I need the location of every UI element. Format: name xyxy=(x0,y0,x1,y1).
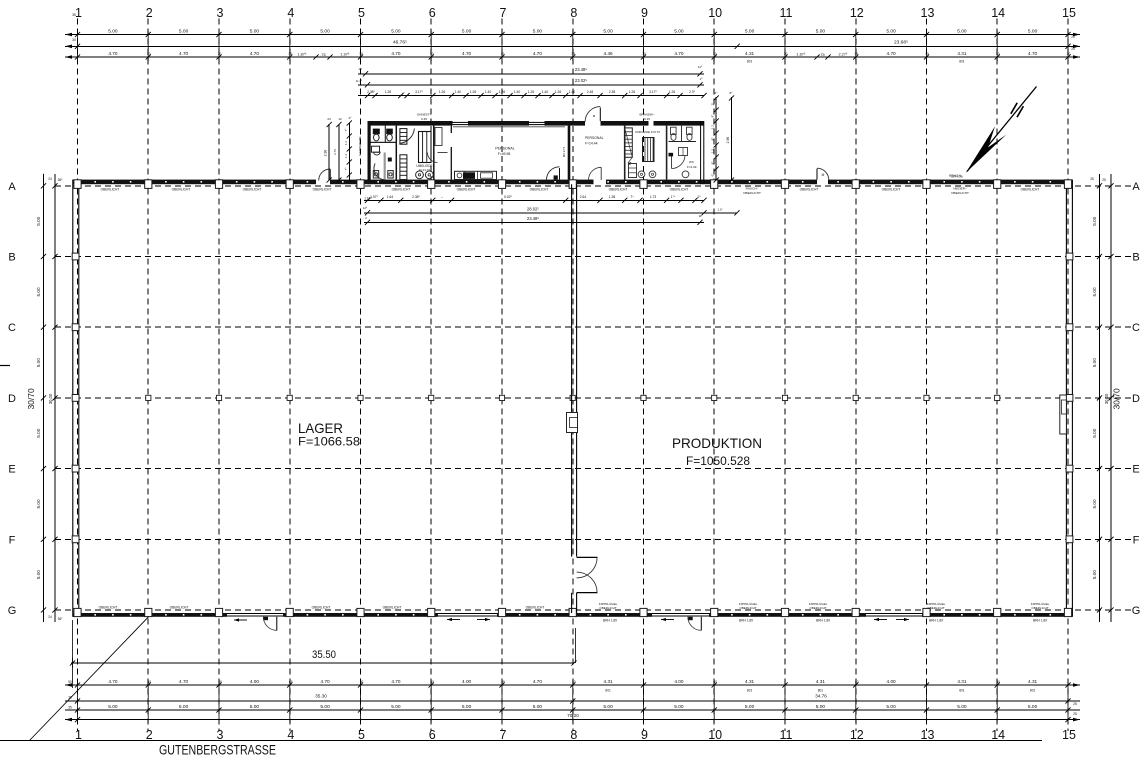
svg-text:1.3: 1.3 xyxy=(344,154,348,158)
svg-text:5.00: 5.00 xyxy=(957,28,967,34)
svg-text:35.30: 35.30 xyxy=(315,693,327,698)
svg-text:2.27⁵: 2.27⁵ xyxy=(839,52,848,56)
svg-text:30: 30 xyxy=(359,52,363,56)
svg-text:24: 24 xyxy=(48,177,52,181)
svg-text:4.00: 4.00 xyxy=(887,679,897,684)
svg-text:.75: .75 xyxy=(320,53,325,57)
svg-text:1.64: 1.64 xyxy=(387,195,394,199)
svg-text:4.70: 4.70 xyxy=(391,51,401,56)
svg-text:4.70: 4.70 xyxy=(179,51,189,56)
svg-text:5.00: 5.00 xyxy=(603,704,613,710)
svg-text:30: 30 xyxy=(642,52,646,56)
svg-text:4.31: 4.31 xyxy=(1028,679,1038,684)
svg-text:5.00: 5.00 xyxy=(36,570,41,580)
svg-text:1.26: 1.26 xyxy=(629,90,636,94)
svg-text:30: 30 xyxy=(996,52,1000,56)
svg-text:1.26: 1.26 xyxy=(439,90,446,94)
svg-text:4.70: 4.70 xyxy=(250,51,260,56)
svg-text:2.76: 2.76 xyxy=(333,149,337,155)
svg-text:1.40: 1.40 xyxy=(514,90,521,94)
svg-text:OBERLICHT: OBERLICHT xyxy=(243,188,262,192)
svg-text:30: 30 xyxy=(501,52,505,56)
svg-text:1.38: 1.38 xyxy=(609,195,616,199)
svg-text:4.70: 4.70 xyxy=(1028,51,1038,56)
svg-text:4.31: 4.31 xyxy=(957,51,967,56)
svg-text:OBERLICHT: OBERLICHT xyxy=(457,188,476,192)
svg-text:BRH 1.89: BRH 1.89 xyxy=(929,619,943,623)
svg-text:801: 801 xyxy=(959,60,965,64)
svg-text:BRH 1.89: BRH 1.89 xyxy=(739,619,753,623)
svg-text:36⁵: 36⁵ xyxy=(58,178,64,182)
svg-text:2.3⁵: 2.3⁵ xyxy=(689,90,696,94)
svg-text:10: 10 xyxy=(358,67,362,71)
svg-text:OBERLICHT: OBERLICHT xyxy=(800,188,819,192)
svg-text:11: 11 xyxy=(698,214,701,218)
svg-text:36⁵: 36⁵ xyxy=(58,617,64,621)
svg-text:5.00: 5.00 xyxy=(391,28,401,34)
svg-text:OBERLICHT: OBERLICHT xyxy=(312,606,331,610)
svg-text:.75: .75 xyxy=(819,53,824,57)
svg-text:D: D xyxy=(1132,393,1140,405)
svg-text:801: 801 xyxy=(818,689,824,693)
svg-text:1.40: 1.40 xyxy=(485,90,492,94)
svg-text:15: 15 xyxy=(1062,6,1076,20)
svg-text:PRODUKTION: PRODUKTION xyxy=(672,435,762,451)
svg-text:8⁵: 8⁵ xyxy=(711,138,715,141)
svg-text:5.00: 5.00 xyxy=(462,28,472,34)
svg-text:801: 801 xyxy=(747,689,753,693)
svg-text:7⁵: 7⁵ xyxy=(344,168,348,171)
svg-text:12⁵: 12⁵ xyxy=(363,206,367,210)
svg-text:1.2: 1.2 xyxy=(711,125,715,129)
svg-text:4.31: 4.31 xyxy=(957,679,967,684)
svg-text:OBERLICHT: OBERLICHT xyxy=(882,188,901,192)
svg-text:9: 9 xyxy=(641,6,648,20)
svg-text:5.00: 5.00 xyxy=(36,358,41,368)
svg-text:F=14.44: F=14.44 xyxy=(585,142,598,146)
svg-text:6: 6 xyxy=(429,6,436,20)
svg-text:G: G xyxy=(1132,605,1141,617)
svg-text:30: 30 xyxy=(571,52,575,56)
svg-text:5.00: 5.00 xyxy=(1092,358,1097,368)
svg-text:1.07⁵: 1.07⁵ xyxy=(370,195,378,199)
svg-text:2.96: 2.96 xyxy=(323,150,327,157)
svg-text:5.00: 5.00 xyxy=(179,704,189,710)
svg-text:65: 65 xyxy=(501,680,505,684)
svg-text:30/70: 30/70 xyxy=(26,388,36,410)
svg-text:1.40: 1.40 xyxy=(569,90,576,94)
svg-text:F=4.09: F=4.09 xyxy=(687,165,697,169)
svg-text:1: 1 xyxy=(75,6,82,20)
svg-text:OBERLICHT: OBERLICHT xyxy=(99,606,118,610)
svg-text:2.48: 2.48 xyxy=(587,90,594,94)
svg-text:30: 30 xyxy=(288,52,292,56)
svg-text:GARDEROBE: GARDEROBE xyxy=(358,136,362,155)
svg-text:5.00: 5.00 xyxy=(533,28,543,34)
svg-text:BRH DB: BRH DB xyxy=(951,175,962,179)
svg-text:35.50: 35.50 xyxy=(312,649,336,661)
svg-text:46.76⁵: 46.76⁵ xyxy=(393,39,407,45)
svg-text:2.38⁵: 2.38⁵ xyxy=(412,195,420,199)
svg-text:WC: WC xyxy=(689,160,695,164)
svg-text:5.00: 5.00 xyxy=(674,704,684,710)
svg-text:–: – xyxy=(403,90,405,94)
svg-text:BRH 1.89: BRH 1.89 xyxy=(1033,619,1047,623)
svg-text:OBERLICHT: OBERLICHT xyxy=(172,188,191,192)
svg-text:GUTENBERGSTRASSE: GUTENBERGSTRASSE xyxy=(159,743,276,758)
svg-text:5.00: 5.00 xyxy=(462,704,472,710)
svg-text:24: 24 xyxy=(327,117,331,121)
svg-text:1.40: 1.40 xyxy=(455,90,462,94)
svg-text:14: 14 xyxy=(991,6,1005,20)
svg-text:30: 30 xyxy=(218,52,222,56)
svg-text:25: 25 xyxy=(1073,712,1077,716)
svg-text:2.64: 2.64 xyxy=(580,195,587,199)
svg-text:1.87⁵: 1.87⁵ xyxy=(298,52,307,56)
svg-text:5.00: 5.00 xyxy=(533,704,543,710)
svg-text:8⁵: 8⁵ xyxy=(711,162,715,165)
svg-text:801: 801 xyxy=(605,689,611,693)
svg-text:OBERLICHT: OBERLICHT xyxy=(170,606,189,610)
svg-text:4.70: 4.70 xyxy=(674,51,684,56)
svg-text:34.76: 34.76 xyxy=(815,693,827,698)
svg-text:2: 2 xyxy=(146,6,153,20)
svg-text:25: 25 xyxy=(1071,47,1075,51)
svg-text:OBERLICHT: OBERLICHT xyxy=(526,606,545,610)
svg-text:5.00: 5.00 xyxy=(179,28,189,34)
svg-text:30: 30 xyxy=(784,52,788,56)
svg-text:C: C xyxy=(8,322,16,334)
svg-text:30: 30 xyxy=(147,52,151,56)
svg-text:23.02⁵: 23.02⁵ xyxy=(575,78,587,83)
svg-text:1.97⁵: 1.97⁵ xyxy=(341,52,350,56)
svg-text:30: 30 xyxy=(1067,52,1071,56)
svg-text:4.70: 4.70 xyxy=(179,679,189,684)
svg-text:5.00: 5.00 xyxy=(1092,428,1097,438)
svg-text:7: 7 xyxy=(500,6,507,20)
svg-text:6⁵: 6⁵ xyxy=(711,174,715,177)
svg-text:5.00: 5.00 xyxy=(745,704,755,710)
svg-text:5.00: 5.00 xyxy=(1028,704,1038,710)
svg-text:OBERLICHT: OBERLICHT xyxy=(1031,606,1048,610)
svg-text:4.70: 4.70 xyxy=(391,679,401,684)
svg-text:30.00: 30.00 xyxy=(48,393,53,404)
svg-text:23.68⁵: 23.68⁵ xyxy=(894,39,908,45)
svg-text:30: 30 xyxy=(72,38,76,42)
svg-text:35: 35 xyxy=(72,13,76,17)
svg-text:4.00: 4.00 xyxy=(462,679,472,684)
svg-text:OBERLICHT: OBERLICHT xyxy=(809,606,826,610)
svg-text:70.20: 70.20 xyxy=(567,713,579,718)
svg-text:15: 15 xyxy=(1062,728,1076,742)
svg-text:G: G xyxy=(8,605,17,617)
svg-text:5.00: 5.00 xyxy=(886,704,896,710)
svg-text:OBERLICHT: OBERLICHT xyxy=(927,606,944,610)
svg-text:1.3: 1.3 xyxy=(344,141,348,145)
svg-text:OBERLICHT: OBERLICHT xyxy=(313,188,332,192)
svg-text:5.00: 5.00 xyxy=(36,216,41,226)
svg-text:5.00: 5.00 xyxy=(36,428,41,438)
svg-text:5.00: 5.00 xyxy=(816,28,826,34)
svg-text:2.96: 2.96 xyxy=(726,137,730,144)
svg-text:30: 30 xyxy=(925,52,929,56)
svg-text:801: 801 xyxy=(747,60,753,64)
svg-text:1.26: 1.26 xyxy=(470,90,477,94)
svg-text:D: D xyxy=(8,393,16,405)
svg-text:F=49.98: F=49.98 xyxy=(498,152,511,156)
svg-text:1⁵: 1⁵ xyxy=(700,77,703,81)
svg-text:–: – xyxy=(441,195,443,199)
svg-text:OBERLICHT: OBERLICHT xyxy=(383,606,402,610)
svg-text:4: 4 xyxy=(287,6,294,20)
svg-text:1.26: 1.26 xyxy=(528,90,535,94)
svg-text:5.00: 5.00 xyxy=(1092,287,1097,297)
svg-text:1.26: 1.26 xyxy=(669,90,676,94)
svg-text:4.70: 4.70 xyxy=(108,51,118,56)
svg-text:5.00: 5.00 xyxy=(391,704,401,710)
svg-text:5.00: 5.00 xyxy=(886,28,896,34)
svg-text:E: E xyxy=(1132,464,1139,476)
svg-text:5.00: 5.00 xyxy=(1028,28,1038,34)
svg-text:BRH 1.89: BRH 1.89 xyxy=(603,619,617,623)
svg-text:2.38: 2.38 xyxy=(609,90,616,94)
svg-text:5.02⁵: 5.02⁵ xyxy=(504,195,512,199)
svg-text:0.45: 0.45 xyxy=(421,117,427,121)
svg-text:F=1066.58: F=1066.58 xyxy=(298,435,360,449)
svg-text:1.87⁵: 1.87⁵ xyxy=(797,52,806,56)
svg-text:25: 25 xyxy=(1071,35,1075,39)
svg-text:5.00: 5.00 xyxy=(320,704,330,710)
svg-text:30: 30 xyxy=(572,680,576,684)
svg-text:25: 25 xyxy=(1073,702,1077,706)
svg-text:UMKLEIDE F=9.79: UMKLEIDE F=9.79 xyxy=(635,130,660,134)
svg-text:4.00: 4.00 xyxy=(674,679,684,684)
svg-text:2.38⁵: 2.38⁵ xyxy=(367,90,375,94)
svg-text:1.40: 1.40 xyxy=(542,90,549,94)
svg-text:OBERLICHT: OBERLICHT xyxy=(1021,188,1040,192)
svg-text:30: 30 xyxy=(147,680,151,684)
svg-text:4.70: 4.70 xyxy=(887,51,897,56)
svg-text:1.2: 1.2 xyxy=(711,149,715,153)
svg-text:B: B xyxy=(1132,252,1139,264)
svg-text:8: 8 xyxy=(570,6,577,20)
svg-text:801: 801 xyxy=(959,689,965,693)
svg-text:7⁵: 7⁵ xyxy=(344,129,348,132)
svg-text:F: F xyxy=(9,534,16,546)
svg-text:0.15: 0.15 xyxy=(644,117,650,121)
svg-text:5: 5 xyxy=(358,6,365,20)
svg-text:5.00: 5.00 xyxy=(108,28,118,34)
svg-text:30: 30 xyxy=(854,52,858,56)
svg-text:OBERLICHT: OBERLICHT xyxy=(599,606,616,610)
svg-text:B: B xyxy=(8,252,15,264)
svg-text:5.00: 5.00 xyxy=(603,28,613,34)
svg-text:801: 801 xyxy=(1030,689,1036,693)
svg-text:11.2⁵: 11.2⁵ xyxy=(356,79,362,83)
svg-text:4.70: 4.70 xyxy=(462,51,472,56)
svg-text:F: F xyxy=(1133,534,1140,546)
svg-text:65: 65 xyxy=(430,680,434,684)
svg-text:12: 12 xyxy=(850,6,864,20)
svg-text:30: 30 xyxy=(713,52,717,56)
svg-text:4.70: 4.70 xyxy=(533,679,543,684)
svg-text:PERSONAL: PERSONAL xyxy=(495,147,515,151)
svg-text:30: 30 xyxy=(360,680,364,684)
svg-text:5.00: 5.00 xyxy=(957,704,967,710)
svg-text:A: A xyxy=(1132,181,1140,193)
svg-text:30: 30 xyxy=(713,680,717,684)
svg-text:MZ 17.5: MZ 17.5 xyxy=(562,146,566,157)
svg-text:30.00: 30.00 xyxy=(1104,393,1109,404)
svg-text:4.70: 4.70 xyxy=(321,679,331,684)
svg-text:65: 65 xyxy=(218,680,222,684)
svg-text:M: M xyxy=(822,173,825,177)
svg-text:4.00: 4.00 xyxy=(250,679,260,684)
svg-text:A: A xyxy=(8,181,16,193)
svg-text:5.00: 5.00 xyxy=(250,704,260,710)
svg-text:5.00: 5.00 xyxy=(745,28,755,34)
svg-text:35: 35 xyxy=(68,706,72,710)
svg-text:BRH 1.89: BRH 1.89 xyxy=(816,619,830,623)
svg-text:25: 25 xyxy=(1090,177,1094,181)
svg-text:3: 3 xyxy=(217,6,224,20)
svg-text:OBERLICHT: OBERLICHT xyxy=(609,188,628,192)
svg-text:8⁵: 8⁵ xyxy=(711,115,715,118)
svg-text:5.00: 5.00 xyxy=(36,287,41,297)
svg-text:5.00: 5.00 xyxy=(1092,499,1097,509)
svg-text:4.46: 4.46 xyxy=(604,51,614,56)
svg-text:30: 30 xyxy=(855,680,859,684)
svg-text:5.00: 5.00 xyxy=(1092,216,1097,226)
svg-text:4.31: 4.31 xyxy=(745,679,755,684)
svg-text:23.48⁵: 23.48⁵ xyxy=(575,67,587,72)
svg-text:1.26: 1.26 xyxy=(499,90,506,94)
svg-text:30: 30 xyxy=(430,52,434,56)
svg-text:OBERLICHT: OBERLICHT xyxy=(670,188,689,192)
svg-text:30: 30 xyxy=(996,680,1000,684)
svg-text:OBERLICHT: OBERLICHT xyxy=(743,191,761,195)
svg-text:PERSONAL: PERSONAL xyxy=(585,136,604,140)
svg-text:12: 12 xyxy=(338,117,342,121)
svg-text:11⁵: 11⁵ xyxy=(698,65,703,69)
svg-text:28.02⁵: 28.02⁵ xyxy=(527,206,539,211)
svg-text:OBERLICHT: OBERLICHT xyxy=(530,188,549,192)
svg-text:3.17⁵: 3.17⁵ xyxy=(415,90,423,94)
svg-text:5.00: 5.00 xyxy=(250,28,260,34)
svg-text:5.00: 5.00 xyxy=(674,28,684,34)
svg-text:1.73: 1.73 xyxy=(650,195,657,199)
svg-text:13: 13 xyxy=(921,6,935,20)
svg-text:OBERLICHT: OBERLICHT xyxy=(739,606,756,610)
svg-text:C: C xyxy=(1132,322,1140,334)
svg-text:1.0⁷: 1.0⁷ xyxy=(717,207,722,211)
svg-text:OBERLICHT: OBERLICHT xyxy=(392,188,411,192)
svg-text:1⁷⁴: 1⁷⁴ xyxy=(671,195,676,199)
svg-text:50: 50 xyxy=(68,680,72,684)
svg-text:4.31: 4.31 xyxy=(816,679,826,684)
svg-text:OBERLICHT: OBERLICHT xyxy=(951,191,969,195)
svg-text:E: E xyxy=(8,464,15,476)
svg-text:11: 11 xyxy=(780,6,793,20)
svg-text:1.26: 1.26 xyxy=(385,90,392,94)
svg-text:65: 65 xyxy=(289,680,293,684)
svg-text:F=1050.528: F=1050.528 xyxy=(686,454,750,468)
svg-text:4.31: 4.31 xyxy=(604,679,614,684)
svg-text:24: 24 xyxy=(48,615,52,619)
svg-text:4.70: 4.70 xyxy=(108,679,118,684)
svg-text:10: 10 xyxy=(708,6,722,20)
svg-text:4.70: 4.70 xyxy=(533,51,543,56)
svg-text:5.00: 5.00 xyxy=(320,28,330,34)
svg-text:5.00: 5.00 xyxy=(108,704,118,710)
svg-text:4.31: 4.31 xyxy=(745,51,755,56)
svg-text:OBERLICHT: OBERLICHT xyxy=(101,188,120,192)
svg-text:5.00: 5.00 xyxy=(36,499,41,509)
svg-text:1.26: 1.26 xyxy=(555,90,562,94)
svg-text:5.00: 5.00 xyxy=(1092,570,1097,580)
svg-text:5.00: 5.00 xyxy=(816,704,826,710)
svg-text:3.17⁵: 3.17⁵ xyxy=(649,90,657,94)
svg-text:25: 25 xyxy=(1102,178,1106,182)
svg-text:7⁴: 7⁴ xyxy=(630,195,634,199)
svg-text:30/70: 30/70 xyxy=(1112,388,1122,410)
svg-text:23.48⁵: 23.48⁵ xyxy=(527,216,539,221)
